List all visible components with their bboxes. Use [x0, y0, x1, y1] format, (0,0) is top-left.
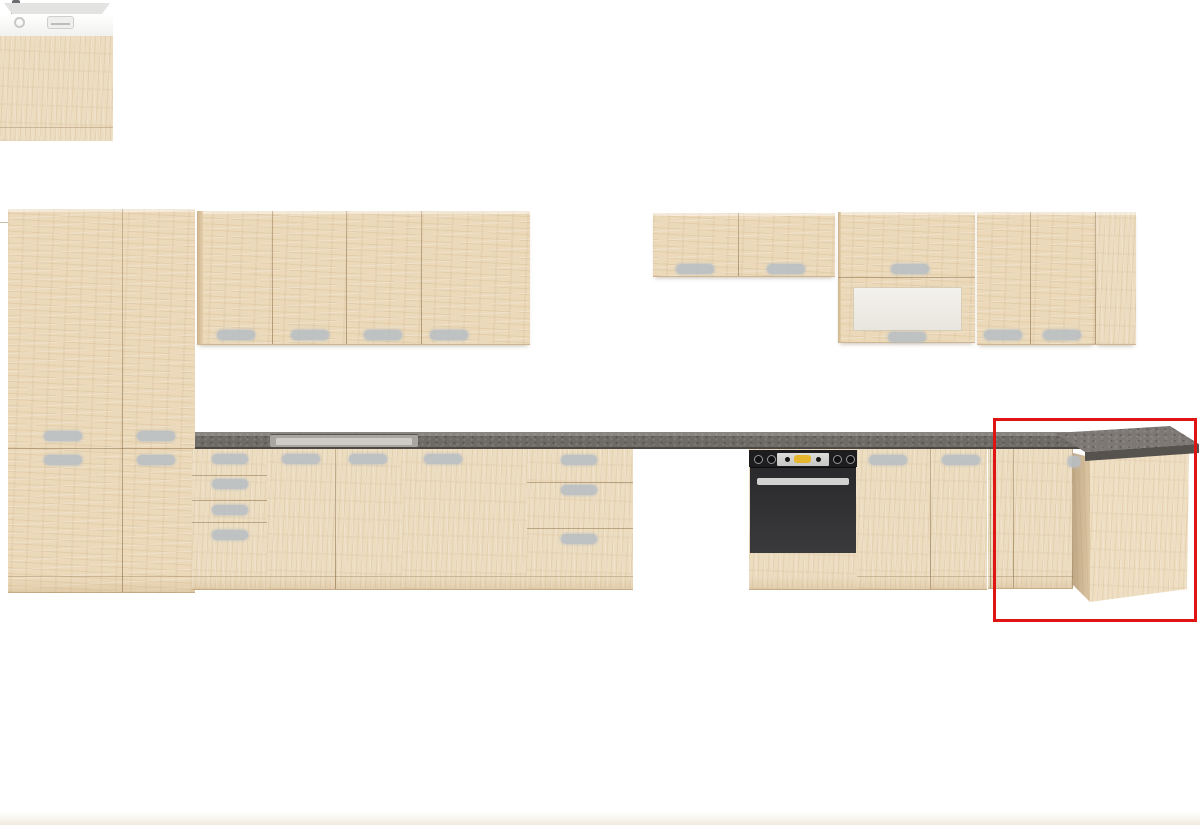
wall-cabinet-row-left [197, 211, 530, 345]
oven-button [785, 457, 790, 462]
plinth-line [0, 127, 113, 128]
drawer-handle [561, 455, 597, 465]
plinth-line [527, 576, 633, 577]
base-cabinet-right-2 [930, 449, 987, 590]
drawer-handle [212, 479, 248, 489]
door-gap [990, 449, 991, 588]
wall-cabinet-end-panel [1095, 212, 1136, 345]
cabinet-top-edge [8, 209, 195, 212]
kitchen-product-image [0, 0, 1200, 825]
dishwasher [0, 82, 113, 223]
door-gap [8, 448, 195, 449]
oven-knob [754, 455, 763, 464]
door-handle [888, 332, 926, 342]
drawer-gap [527, 528, 633, 529]
door-handle [282, 454, 320, 464]
door-handle [291, 330, 329, 340]
door-handle [869, 455, 907, 465]
oven-clock-display [794, 455, 811, 463]
door-gap [421, 211, 422, 344]
oven-housing [749, 449, 857, 590]
oven-door [750, 467, 856, 553]
wall-cabinet-tall-pair [977, 212, 1095, 345]
sink-drainer [276, 438, 412, 445]
oven-knob [833, 455, 842, 464]
tall-pantry-cabinet [8, 209, 195, 593]
door-handle [942, 455, 980, 465]
wall-cabinet-glass-flap [838, 212, 975, 343]
door-handle [44, 431, 82, 441]
oven-knob [767, 455, 776, 464]
door-gap [838, 277, 975, 278]
base-cabinet-wide [402, 449, 527, 590]
door-gap [346, 211, 347, 344]
plinth-line [267, 576, 402, 577]
plinth-line [8, 576, 195, 577]
dishwasher-control-panel [0, 14, 113, 37]
door-gap [335, 449, 336, 589]
oven-door-handle [757, 478, 849, 485]
door-handle [44, 455, 82, 465]
drawer-handle [212, 505, 248, 515]
plinth-line [930, 576, 987, 577]
dishwasher-top-inset [4, 3, 110, 14]
plinth-line [192, 576, 267, 577]
plinth-line [402, 576, 527, 577]
frosted-glass-panel [853, 287, 962, 331]
inset-sink [270, 434, 418, 447]
door-handle [217, 330, 255, 340]
door-handle [1043, 330, 1081, 340]
sink-base-cabinet [267, 449, 402, 590]
door-gap [738, 213, 739, 276]
drawer-unit-left [192, 449, 267, 590]
base-cabinet-right-1 [857, 449, 930, 590]
door-handle [767, 264, 805, 274]
door-handle [676, 264, 714, 274]
door-handle [891, 264, 929, 274]
drawer-handle [561, 534, 597, 544]
dishwasher-handle-recess [47, 16, 74, 29]
drawer-unit-right [527, 449, 633, 590]
door-handle [424, 454, 462, 464]
door-handle [137, 455, 175, 465]
cabinet-side-edge [197, 211, 203, 344]
door-handle [137, 431, 175, 441]
dishwasher-dial [14, 17, 25, 28]
dishwasher-handle-bar [51, 23, 70, 25]
highlight-box [993, 418, 1197, 622]
panel-edge [1095, 212, 1096, 344]
wall-cabinet-short-pair [653, 213, 835, 277]
drawer-handle [561, 485, 597, 495]
drawer-gap [192, 500, 267, 501]
door-gap [122, 209, 123, 592]
door-handle [364, 330, 402, 340]
drawer-gap [192, 522, 267, 523]
plinth-line [857, 576, 930, 577]
door-gap [930, 449, 931, 589]
drawer-gap [192, 475, 267, 476]
oven-button [816, 457, 821, 462]
dishwasher-furniture-door [0, 36, 113, 141]
drawer-handle [212, 530, 248, 540]
door-handle [349, 454, 387, 464]
drawer-handle [212, 454, 248, 464]
drawer-gap [527, 482, 633, 483]
door-gap [1030, 212, 1031, 344]
door-gap [272, 211, 273, 344]
oven-control-panel [749, 450, 857, 467]
oven-display-panel [777, 453, 829, 466]
oven-knob [846, 455, 855, 464]
door-handle [984, 330, 1022, 340]
door-handle [430, 330, 468, 340]
